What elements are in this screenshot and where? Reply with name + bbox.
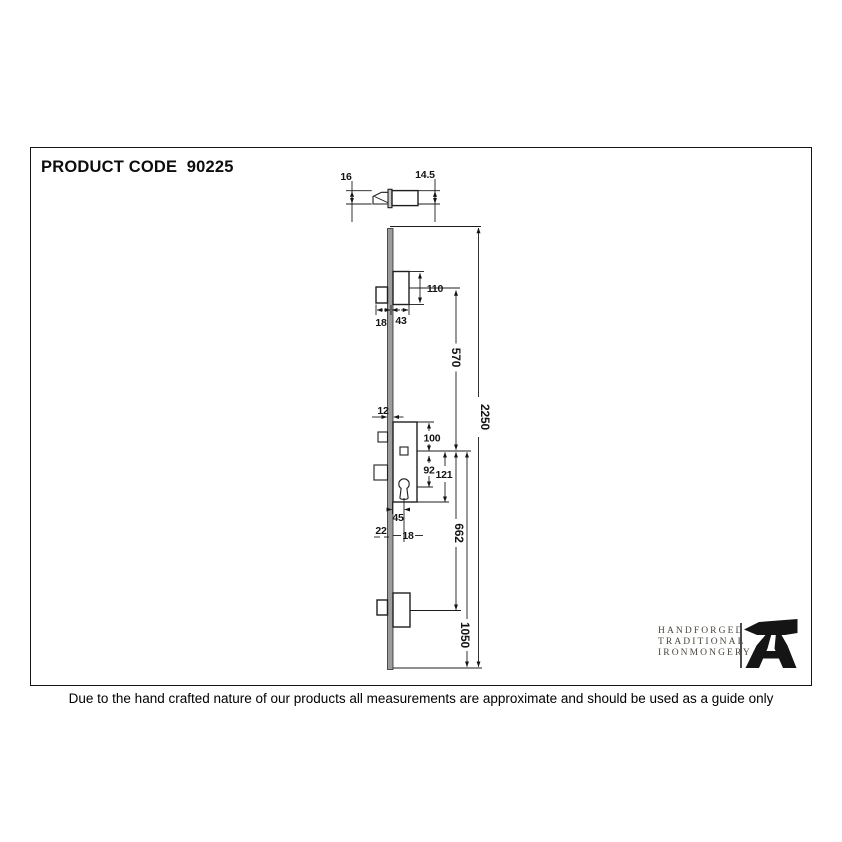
logo-divider <box>740 623 742 668</box>
dim-22: 22 <box>375 525 387 537</box>
dim-plan-14-5: 14.5 <box>415 169 435 181</box>
top-hook-case <box>393 272 409 305</box>
dim-570: 570 <box>449 348 463 368</box>
product-drawing-page: PRODUCT CODE 90225 <box>0 0 842 842</box>
deadbolt <box>374 465 388 480</box>
lock-technical-diagram: 16 14.5 110 18 43 570 2250 12 100 92 121… <box>0 0 842 842</box>
logo-text-line: TRADITIONAL <box>658 637 752 648</box>
plan-bolt <box>392 191 418 206</box>
logo-text-line: HANDFORGED <box>658 626 752 637</box>
dim-18-top: 18 <box>375 317 387 329</box>
dim-121: 121 <box>436 469 453 481</box>
logo-text-line: IRONMONGERY <box>658 648 752 659</box>
dim-2250: 2250 <box>478 404 492 430</box>
dim-92: 92 <box>423 465 435 477</box>
spindle-hole <box>400 447 408 455</box>
bottom-hook-case <box>393 593 410 627</box>
dim-110: 110 <box>427 283 444 295</box>
dim-45: 45 <box>392 512 404 524</box>
disclaimer-text: Due to the hand crafted nature of our pr… <box>0 691 842 706</box>
faceplate <box>388 229 394 670</box>
dim-43: 43 <box>395 315 407 327</box>
dim-1050: 1050 <box>458 622 472 648</box>
bottom-hook-bolt <box>377 600 388 615</box>
dim-12: 12 <box>377 405 389 417</box>
latch-bolt <box>378 432 388 442</box>
brand-logo: HANDFORGED TRADITIONAL IRONMONGERY <box>658 626 752 659</box>
top-hook-bolt <box>376 287 388 303</box>
dim-18-bottom: 18 <box>402 530 414 542</box>
anvil-icon <box>744 619 798 671</box>
dim-plan-16: 16 <box>340 171 352 183</box>
plan-view <box>346 179 440 222</box>
dim-662: 662 <box>452 523 466 543</box>
dim-100: 100 <box>424 433 441 445</box>
